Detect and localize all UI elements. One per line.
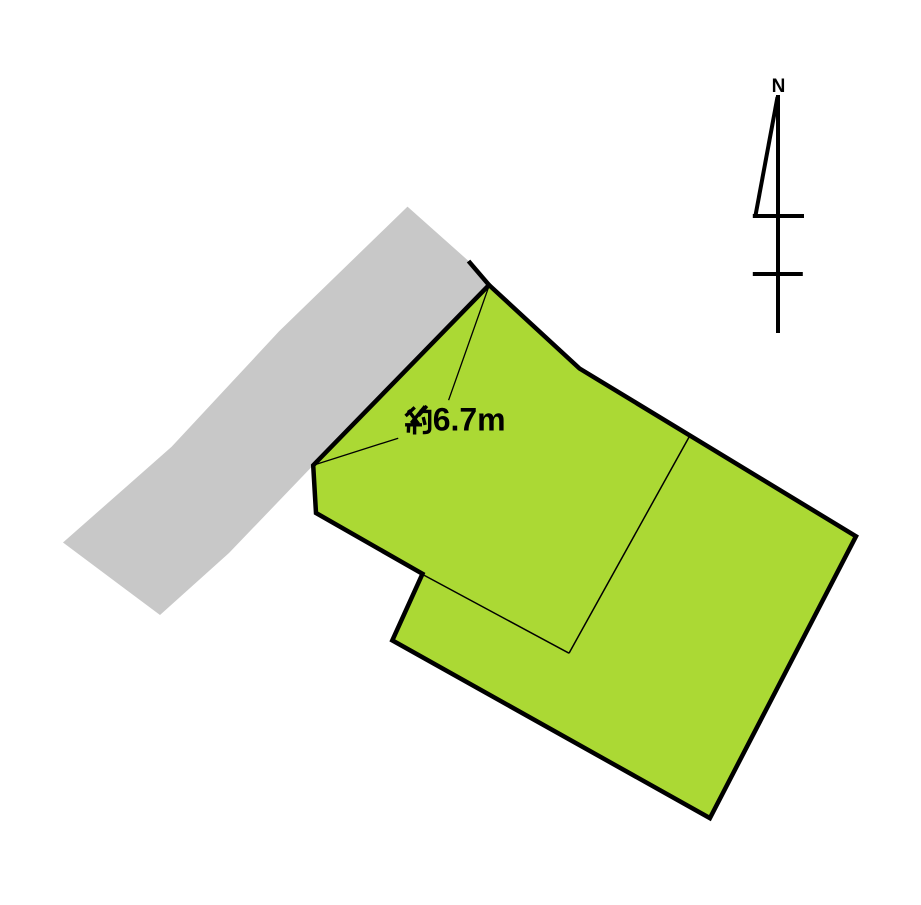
svg-text:N: N bbox=[772, 76, 786, 97]
svg-text:6.7m: 6.7m bbox=[433, 402, 506, 438]
